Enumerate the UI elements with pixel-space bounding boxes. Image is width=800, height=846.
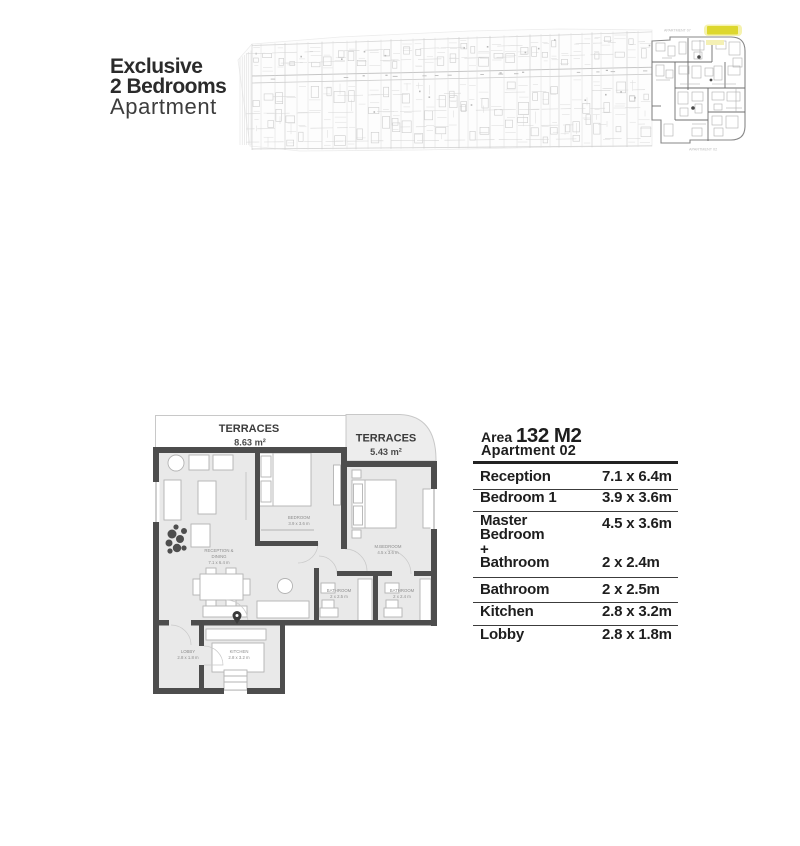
svg-text:APARTMENT 07: APARTMENT 07 [664, 29, 691, 33]
svg-text:TERRACES: TERRACES [219, 423, 280, 435]
svg-text:BEDROOM: BEDROOM [288, 515, 311, 520]
svg-text:2.8 x 3.2 m: 2.8 x 3.2 m [228, 655, 250, 660]
svg-text:2.8 x 1.8 m: 2.8 x 1.8 m [177, 655, 199, 660]
svg-text:2 x 2.5 m: 2 x 2.5 m [330, 594, 348, 599]
svg-text:APARTMENT 02: APARTMENT 02 [689, 148, 717, 152]
svg-text:7.1 x 6.4 m: 7.1 x 6.4 m [208, 560, 230, 565]
svg-text:RECEPTION &: RECEPTION & [204, 548, 233, 553]
svg-text:3.9 x 3.6 m: 3.9 x 3.6 m [288, 521, 310, 526]
svg-text:KITCHEN: KITCHEN [230, 649, 249, 654]
svg-text:M.BEDROOM: M.BEDROOM [375, 544, 402, 549]
svg-text:BATHROOM: BATHROOM [390, 588, 415, 593]
svg-text:5.43 m²: 5.43 m² [370, 447, 402, 457]
svg-text:LOBBY: LOBBY [181, 649, 195, 654]
svg-text:8.63 m²: 8.63 m² [234, 438, 266, 448]
svg-text:4.5 x 3.6 m: 4.5 x 3.6 m [377, 550, 399, 555]
svg-text:DINING: DINING [211, 554, 227, 559]
svg-text:TERRACES: TERRACES [356, 433, 417, 445]
svg-text:2 x 2.4 m: 2 x 2.4 m [393, 594, 411, 599]
svg-text:BATHROOM: BATHROOM [327, 588, 352, 593]
